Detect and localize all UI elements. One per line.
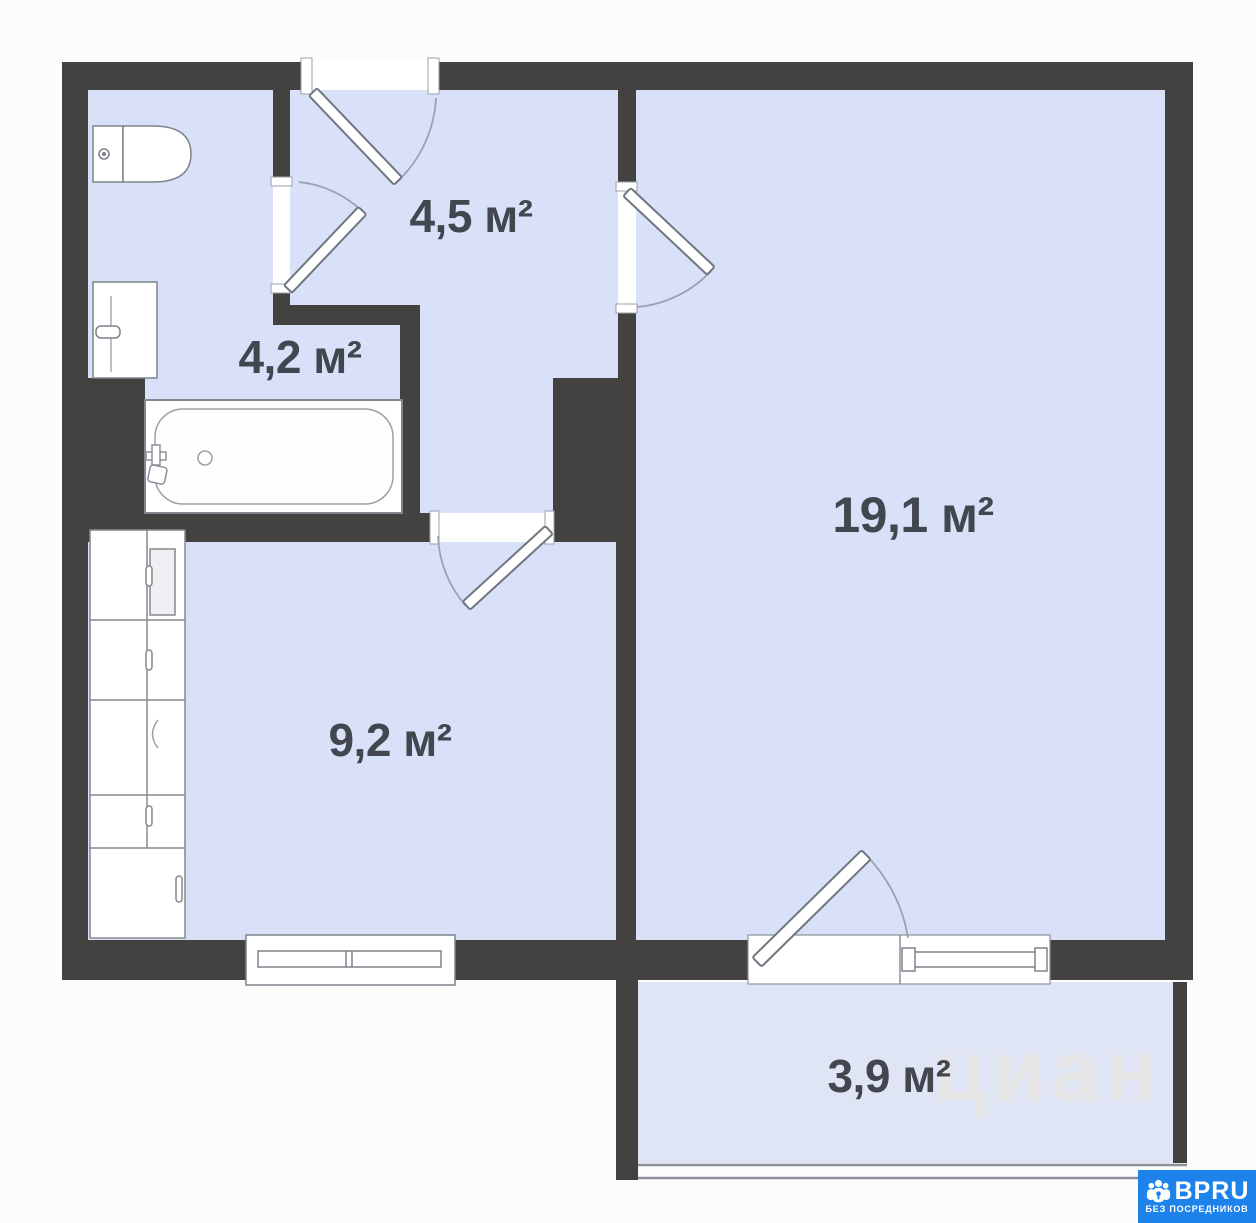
entrance-jamb-right — [428, 58, 439, 94]
living-door-opening — [618, 191, 636, 304]
wall-bathroom-horizontal — [273, 305, 420, 325]
wall-hall-living-top — [618, 90, 636, 183]
wall-bathroom-right-top — [273, 90, 290, 178]
kitchen-window — [246, 935, 455, 985]
wall-kitchen-door-block — [553, 378, 636, 542]
bpru-logo-text: BPRU — [1175, 1179, 1250, 1204]
kitchen-door-opening — [439, 513, 545, 542]
wall-kitchen-living — [616, 542, 636, 940]
bathtub — [145, 400, 402, 513]
wall-right — [1165, 62, 1193, 980]
bathroom-door-opening — [273, 186, 290, 284]
hallway-area-label: 4,5 м² — [409, 189, 532, 243]
wall-top-left — [62, 62, 301, 90]
cabinet-handle — [146, 566, 152, 586]
living-jamb-bottom — [616, 304, 637, 313]
toilet — [93, 126, 191, 182]
toilet-bowl — [123, 126, 191, 182]
wall-hall-living-mid — [618, 313, 636, 378]
kitchen-appliance — [150, 549, 175, 615]
balcony-glazing — [638, 1165, 1187, 1178]
living-room-window — [748, 935, 1050, 984]
entrance-opening — [312, 62, 428, 90]
cabinet-handle — [146, 650, 152, 670]
balcony-area-label: 3,9 м² — [827, 1049, 950, 1103]
wall-balcony-right — [1173, 982, 1187, 1163]
wall-left — [62, 62, 88, 980]
bathroom-area-label: 4,2 м² — [238, 330, 361, 384]
people-lock-icon — [1145, 1179, 1172, 1204]
sink — [93, 282, 157, 378]
wall-tub-left-block — [88, 378, 145, 513]
wall-bottom-right — [1050, 940, 1193, 980]
bpru-tagline: БЕЗ ПОСРЕДНИКОВ — [1146, 1205, 1249, 1214]
kitchen-area-label: 9,2 м² — [328, 713, 451, 767]
kitchen-cabinets — [90, 530, 185, 938]
floor-plan-drawing — [0, 0, 1256, 1223]
cabinet-handle — [146, 806, 152, 826]
living-room-area-label: 19,1 м² — [832, 486, 993, 544]
bathtub-drain — [198, 451, 212, 465]
cabinet-handle — [176, 876, 182, 902]
entrance-jamb-left — [301, 58, 312, 94]
floor-plan-image: циан 4,5 м² 4,2 м² 19,1 м² 9,2 м² 3,9 м² — [0, 0, 1256, 1223]
bathroom-jamb-top — [271, 177, 292, 186]
wall-balcony-left — [616, 940, 638, 1180]
wall-top-right — [439, 62, 1193, 90]
bpru-badge: BPRU БЕЗ ПОСРЕДНИКОВ — [1138, 1170, 1256, 1223]
